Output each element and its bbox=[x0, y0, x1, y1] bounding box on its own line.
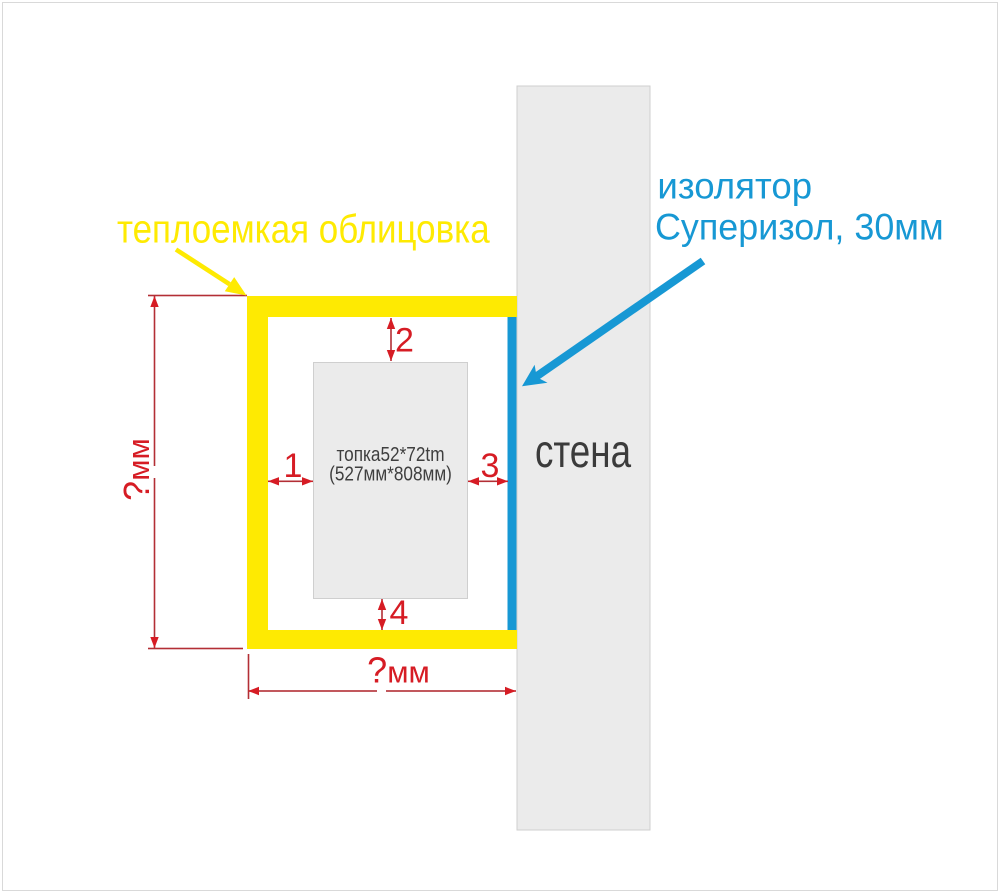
svg-text:теплоемкая облицовка: теплоемкая облицовка bbox=[117, 206, 490, 251]
svg-text:Суперизол, 30мм: Суперизол, 30мм bbox=[655, 206, 944, 248]
svg-text:?мм: ?мм bbox=[116, 438, 157, 501]
svg-text:?мм: ?мм bbox=[367, 650, 430, 691]
svg-text:2: 2 bbox=[395, 322, 414, 360]
svg-text:стена: стена bbox=[535, 425, 632, 477]
svg-text:1: 1 bbox=[284, 447, 303, 485]
svg-text:3: 3 bbox=[481, 447, 500, 485]
svg-text:4: 4 bbox=[390, 594, 409, 632]
svg-text:изолятор: изолятор bbox=[657, 165, 812, 206]
svg-text:(527мм*808мм): (527мм*808мм) bbox=[329, 462, 452, 485]
